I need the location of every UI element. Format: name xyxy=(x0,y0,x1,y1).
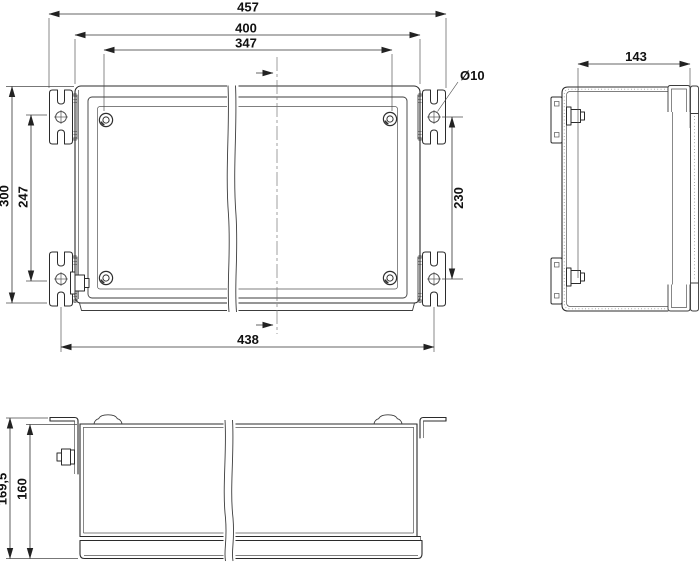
door-inner-frame xyxy=(98,107,398,290)
hinge-bump-right xyxy=(374,415,402,424)
dim-label-247: 247 xyxy=(16,186,31,208)
cover-screw-top-left xyxy=(99,113,112,126)
wall-bolt-front xyxy=(71,272,90,294)
wall-flange-left xyxy=(50,418,78,475)
dim-body-width: 400 xyxy=(75,21,420,36)
bottom-lid xyxy=(80,541,422,559)
mounting-bracket-bottom-right xyxy=(418,252,446,306)
wall-flange-right xyxy=(420,418,446,439)
mounting-bracket-top-left xyxy=(50,90,78,144)
door-section-hatch-bottom xyxy=(691,283,699,311)
front-view: 457 400 347 300 247 230 438 Ø10 xyxy=(0,0,485,352)
dim-label-169-5: 169,5 xyxy=(0,473,10,506)
dim-hole-spacing-vertical: 230 xyxy=(451,117,466,279)
dim-label-400: 400 xyxy=(235,21,257,36)
cover-screw-top-right xyxy=(383,112,396,125)
side-bracket-bottom xyxy=(551,258,585,304)
dim-label-160: 160 xyxy=(15,478,30,500)
mounting-bracket-top-right xyxy=(418,90,446,144)
dim-overall-height: 169,5 xyxy=(0,418,10,559)
technical-drawing-canvas: 457 400 347 300 247 230 438 Ø10 xyxy=(0,0,700,564)
break-line xyxy=(227,84,239,314)
bottom-view: 169,5 160 xyxy=(0,415,446,562)
dim-hole-spacing-horizontal: 438 xyxy=(61,332,434,347)
door-section-hatch-top xyxy=(691,86,699,114)
enclosure-drawing: 457 400 347 300 247 230 438 Ø10 xyxy=(0,0,700,564)
break-line-bottom xyxy=(224,419,236,562)
cover-screw-bottom-left xyxy=(99,271,112,284)
dim-inner-width: 347 xyxy=(104,36,392,51)
dim-inner-height: 247 xyxy=(16,115,32,281)
dim-label-457: 457 xyxy=(237,0,259,15)
side-bracket-top xyxy=(551,97,585,143)
enclosure-body-outline xyxy=(75,86,420,303)
bottom-body-outline xyxy=(80,424,421,541)
door-slab xyxy=(691,86,699,311)
dim-body-height-bottom: 160 xyxy=(15,425,31,559)
dim-label-300: 300 xyxy=(0,185,12,207)
dim-label-143: 143 xyxy=(625,49,647,64)
cover-screw-bottom-right xyxy=(383,271,396,284)
door-frame-channel-bottom xyxy=(668,285,690,312)
dim-overall-width: 457 xyxy=(49,0,446,15)
door-frame-channel-top xyxy=(668,86,690,113)
dim-label-347: 347 xyxy=(235,36,257,51)
dim-depth: 143 xyxy=(578,49,690,64)
dim-label-230: 230 xyxy=(451,187,466,209)
dim-body-height: 300 xyxy=(0,87,12,304)
hinge-bump-left xyxy=(94,415,122,424)
dim-label-438: 438 xyxy=(237,332,259,347)
body-bottom-lip xyxy=(80,303,415,311)
door-outline xyxy=(88,97,407,298)
side-view: 143 xyxy=(551,49,699,311)
dim-label-hole-diameter: Ø10 xyxy=(460,68,485,83)
